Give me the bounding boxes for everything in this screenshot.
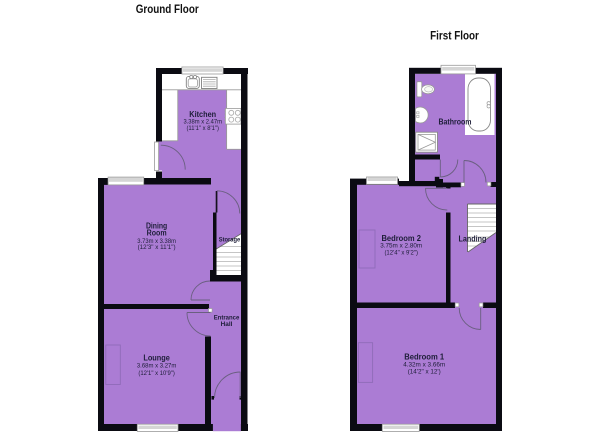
svg-text:Landing: Landing xyxy=(459,235,487,244)
svg-text:(12'3" x 11'1"): (12'3" x 11'1") xyxy=(138,244,176,251)
svg-text:(12'1" x 10'9"): (12'1" x 10'9") xyxy=(138,370,175,377)
svg-text:Bedroom 1: Bedroom 1 xyxy=(404,353,445,362)
svg-text:Ground Floor: Ground Floor xyxy=(136,4,199,16)
svg-text:(11'1" x 8'1"): (11'1" x 8'1") xyxy=(186,125,219,132)
svg-text:First Floor: First Floor xyxy=(430,30,479,42)
svg-text:Lounge: Lounge xyxy=(143,354,170,363)
svg-text:(12'4" x 9'2"): (12'4" x 9'2") xyxy=(384,250,418,257)
svg-text:Room: Room xyxy=(147,229,167,238)
svg-text:3.75m x 2.80m: 3.75m x 2.80m xyxy=(380,243,422,250)
svg-text:(14'2" x 12'): (14'2" x 12') xyxy=(408,368,441,375)
svg-text:3.68m x 3.27m: 3.68m x 3.27m xyxy=(137,363,177,370)
svg-text:Bedroom 2: Bedroom 2 xyxy=(381,234,421,243)
svg-text:4.32m x 3.66m: 4.32m x 3.66m xyxy=(403,361,445,368)
svg-text:Hall: Hall xyxy=(221,321,233,328)
svg-text:Bathroom: Bathroom xyxy=(439,117,472,126)
svg-text:Storage: Storage xyxy=(219,236,241,243)
